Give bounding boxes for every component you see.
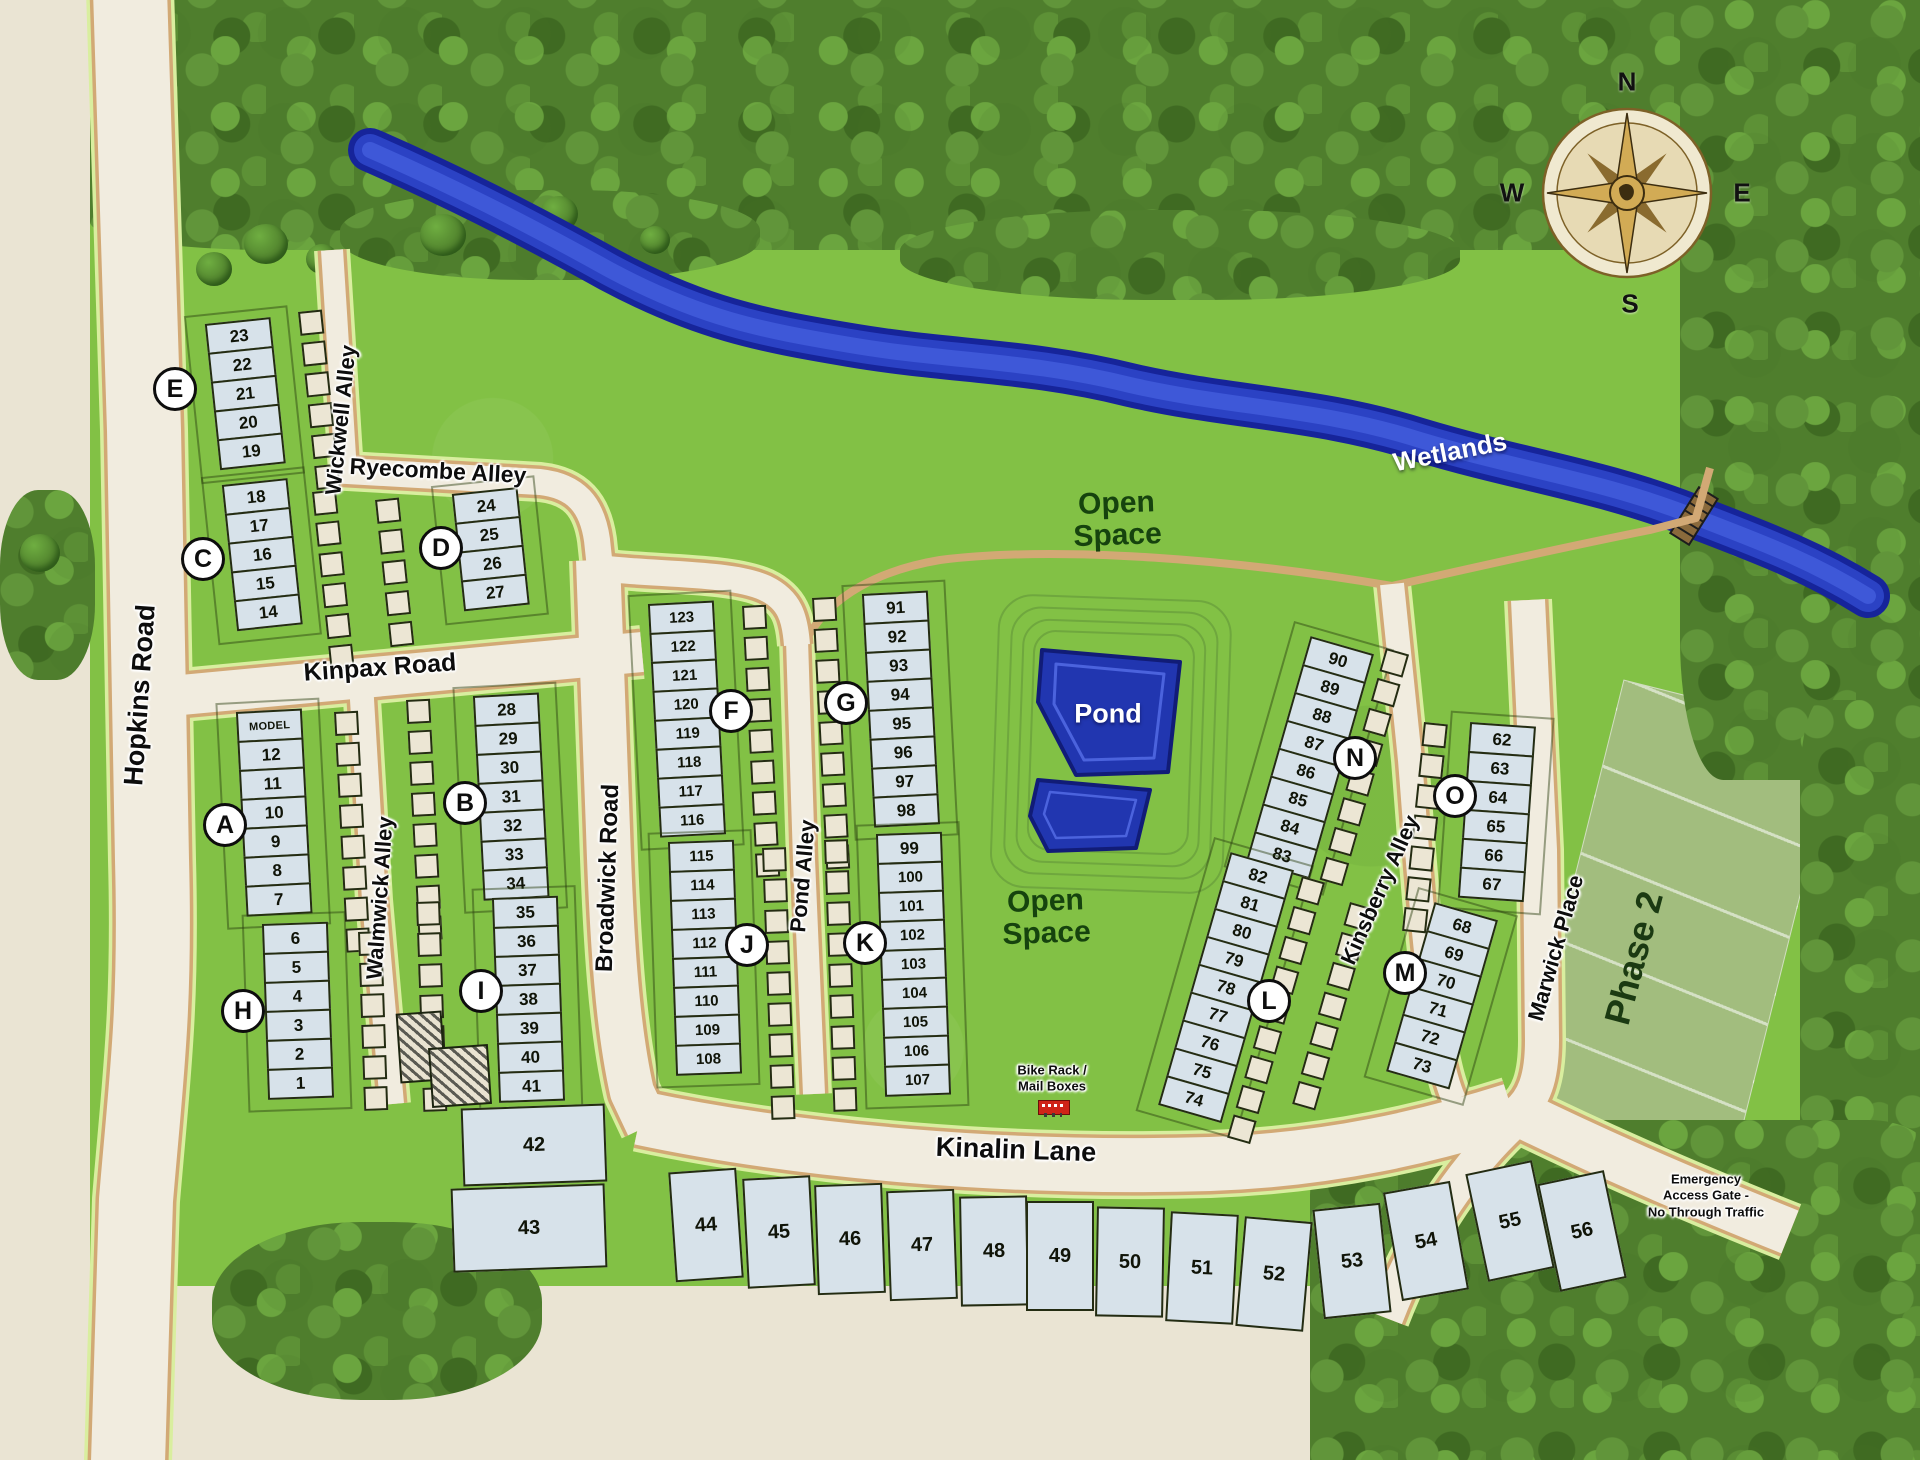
garage-square bbox=[829, 994, 854, 1019]
block-letter-B: B bbox=[443, 781, 487, 825]
garage-square bbox=[406, 699, 431, 724]
garage-square bbox=[1292, 1081, 1322, 1111]
garage-square bbox=[832, 1056, 857, 1081]
garage-square bbox=[766, 971, 791, 996]
lot-54[interactable]: 54 bbox=[1383, 1181, 1469, 1301]
block-letter-M: M bbox=[1383, 951, 1427, 995]
garage-square bbox=[742, 605, 767, 630]
compass-east-label: E bbox=[1733, 178, 1750, 209]
garage-square bbox=[301, 340, 327, 366]
garage-square bbox=[342, 866, 367, 891]
lot-50[interactable]: 50 bbox=[1095, 1206, 1165, 1317]
block-letter-G: G bbox=[824, 681, 868, 725]
garage-square bbox=[748, 729, 773, 754]
garage-square bbox=[1318, 991, 1348, 1021]
garage-square bbox=[334, 711, 359, 736]
garage-square bbox=[762, 847, 787, 872]
garage-square bbox=[771, 1095, 796, 1120]
block-D-lots: 24252627 bbox=[452, 489, 530, 611]
lot-46[interactable]: 46 bbox=[814, 1183, 886, 1295]
block-C-garages bbox=[312, 489, 355, 670]
garage-square bbox=[1328, 827, 1358, 857]
garage-square bbox=[416, 901, 441, 926]
garage-square bbox=[814, 628, 839, 653]
garage-square bbox=[763, 878, 788, 903]
garage-square bbox=[824, 839, 849, 864]
lot-39[interactable]: 39 bbox=[496, 1012, 563, 1045]
garage-square bbox=[408, 730, 433, 755]
garage-square bbox=[1362, 708, 1392, 738]
open-space-label-north: Open Space bbox=[1072, 486, 1163, 554]
garage-square bbox=[318, 551, 344, 577]
garage-square bbox=[417, 932, 442, 957]
open-space-label-south: Open Space bbox=[1001, 884, 1092, 952]
garage-square bbox=[1253, 1025, 1283, 1055]
garage-square bbox=[385, 590, 411, 616]
block-letter-D: D bbox=[419, 526, 463, 570]
lot-51[interactable]: 51 bbox=[1165, 1211, 1239, 1324]
garage-square bbox=[304, 371, 330, 397]
block-A-lots: MODEL121110987 bbox=[236, 711, 313, 917]
lot-7[interactable]: 7 bbox=[245, 882, 313, 916]
block-O-lots: 626364656667 bbox=[1458, 724, 1536, 902]
lot-55[interactable]: 55 bbox=[1465, 1160, 1554, 1282]
lot-5[interactable]: 5 bbox=[263, 951, 330, 984]
block-letter-F: F bbox=[709, 689, 753, 733]
lot-44[interactable]: 44 bbox=[668, 1168, 744, 1282]
lot-45[interactable]: 45 bbox=[742, 1175, 816, 1288]
garage-square bbox=[1278, 936, 1308, 966]
mailbox-icon bbox=[1038, 1100, 1070, 1115]
garage-square bbox=[770, 1064, 795, 1089]
block-K-garages bbox=[824, 839, 857, 1112]
garage-square bbox=[828, 963, 853, 988]
garage-square bbox=[830, 1025, 855, 1050]
lot-100[interactable]: 100 bbox=[877, 861, 944, 894]
lot-40[interactable]: 40 bbox=[497, 1041, 564, 1074]
garage-square bbox=[826, 901, 851, 926]
garage-square bbox=[1301, 1051, 1331, 1081]
garage-square bbox=[750, 760, 775, 785]
lot-101[interactable]: 101 bbox=[878, 890, 945, 923]
lot-103[interactable]: 103 bbox=[880, 948, 947, 981]
lot-67[interactable]: 67 bbox=[1458, 867, 1526, 903]
block-letter-K: K bbox=[843, 921, 887, 965]
garage-square bbox=[322, 582, 348, 608]
lot-105[interactable]: 105 bbox=[882, 1006, 949, 1039]
garage-square bbox=[1418, 753, 1444, 779]
garage-square bbox=[1236, 1085, 1266, 1115]
block-letter-N: N bbox=[1333, 736, 1377, 780]
garage-square bbox=[767, 1002, 792, 1027]
block-H-lots: 654321 bbox=[262, 924, 334, 1100]
lot-108[interactable]: 108 bbox=[675, 1043, 742, 1076]
block-letter-C: C bbox=[181, 537, 225, 581]
lot-14[interactable]: 14 bbox=[234, 593, 303, 631]
hatched-building bbox=[428, 1044, 492, 1108]
lot-35[interactable]: 35 bbox=[492, 896, 559, 929]
lot-111[interactable]: 111 bbox=[672, 956, 739, 989]
garage-square bbox=[340, 835, 365, 860]
block-C-lots: 1817161514 bbox=[222, 480, 303, 631]
garage-square bbox=[315, 520, 341, 546]
garage-square bbox=[378, 528, 404, 554]
lot-53[interactable]: 53 bbox=[1312, 1203, 1391, 1320]
garage-square bbox=[298, 309, 324, 335]
lot-6[interactable]: 6 bbox=[262, 922, 329, 955]
garage-square bbox=[1337, 797, 1367, 827]
block-letter-E: E bbox=[153, 367, 197, 411]
garage-square bbox=[815, 659, 840, 684]
garage-square bbox=[418, 963, 443, 988]
garage-square bbox=[375, 497, 401, 523]
garage-square bbox=[1409, 845, 1435, 871]
block-D-garages bbox=[375, 497, 414, 647]
compass-west-label: W bbox=[1500, 178, 1525, 209]
garage-square bbox=[362, 1055, 387, 1080]
garage-square bbox=[1421, 722, 1447, 748]
block-letter-I: I bbox=[459, 969, 503, 1013]
garage-square bbox=[411, 792, 436, 817]
garage-square bbox=[360, 993, 385, 1018]
garage-square bbox=[1244, 1055, 1274, 1085]
lot-49[interactable]: 49 bbox=[1026, 1201, 1094, 1311]
lot-114[interactable]: 114 bbox=[669, 869, 736, 902]
lot-41[interactable]: 41 bbox=[498, 1070, 565, 1103]
garage-square bbox=[812, 597, 837, 622]
lot-99[interactable]: 99 bbox=[876, 832, 943, 865]
lot-37[interactable]: 37 bbox=[494, 954, 561, 987]
garage-square bbox=[745, 667, 770, 692]
block-letter-J: J bbox=[725, 923, 769, 967]
emergency-access-gate-label: Emergency Access Gate - No Through Traff… bbox=[1648, 1172, 1764, 1221]
garage-square bbox=[409, 761, 434, 786]
block-letter-L: L bbox=[1247, 979, 1291, 1023]
lot-106[interactable]: 106 bbox=[883, 1035, 950, 1068]
block-G-lots: 9192939495969798 bbox=[862, 593, 940, 828]
lot-107[interactable]: 107 bbox=[884, 1064, 951, 1097]
garage-square bbox=[337, 773, 362, 798]
lot-27[interactable]: 27 bbox=[461, 574, 530, 612]
lot-1[interactable]: 1 bbox=[267, 1067, 334, 1100]
lot-113[interactable]: 113 bbox=[670, 898, 737, 931]
garage-square bbox=[414, 854, 439, 879]
garage-square bbox=[1295, 876, 1325, 906]
lot-4[interactable]: 4 bbox=[264, 980, 331, 1013]
lot-48[interactable]: 48 bbox=[959, 1195, 1029, 1306]
garage-square bbox=[381, 559, 407, 585]
garage-square bbox=[1287, 906, 1317, 936]
lot-36[interactable]: 36 bbox=[493, 925, 560, 958]
garage-square bbox=[820, 752, 845, 777]
garage-square bbox=[325, 613, 351, 639]
lot-102[interactable]: 102 bbox=[879, 919, 946, 952]
lot-38[interactable]: 38 bbox=[495, 983, 562, 1016]
lot-47[interactable]: 47 bbox=[886, 1189, 958, 1301]
block-K-lots: 99100101102103104105106107 bbox=[876, 834, 951, 1097]
garage-square bbox=[1309, 1021, 1339, 1051]
lot-3[interactable]: 3 bbox=[265, 1009, 332, 1042]
garage-square bbox=[833, 1087, 858, 1112]
block-I-lots: 35363738394041 bbox=[492, 898, 565, 1103]
garage-square bbox=[744, 636, 769, 661]
garage-square bbox=[361, 1024, 386, 1049]
lot-52[interactable]: 52 bbox=[1235, 1216, 1312, 1332]
block-M-lots: 686970717273 bbox=[1386, 904, 1497, 1089]
garage-square bbox=[388, 621, 414, 647]
street-label-kinalin-lane: Kinalin Lane bbox=[935, 1132, 1097, 1169]
garage-square bbox=[363, 1086, 388, 1111]
garage-square bbox=[825, 870, 850, 895]
garage-square bbox=[753, 821, 778, 846]
garage-square bbox=[412, 823, 437, 848]
garage-square bbox=[1227, 1114, 1257, 1144]
lot-42[interactable]: 42 bbox=[461, 1104, 608, 1187]
lot-56[interactable]: 56 bbox=[1537, 1170, 1626, 1292]
pond-label: Pond bbox=[1074, 699, 1142, 730]
garage-square bbox=[1326, 962, 1356, 992]
lot-109[interactable]: 109 bbox=[674, 1014, 741, 1047]
bike-rack-mailboxes-label: Bike Rack / Mail Boxes bbox=[1017, 1062, 1086, 1093]
garage-square bbox=[823, 813, 848, 838]
block-letter-A: A bbox=[203, 803, 247, 847]
lot-110[interactable]: 110 bbox=[673, 985, 740, 1018]
block-E-lots: 2322212019 bbox=[205, 319, 286, 470]
compass-south-label: S bbox=[1621, 289, 1638, 320]
block-letter-O: O bbox=[1433, 774, 1477, 818]
garage-square bbox=[339, 804, 364, 829]
garage-square bbox=[752, 790, 777, 815]
garage-square bbox=[1371, 678, 1401, 708]
lot-19[interactable]: 19 bbox=[217, 432, 286, 470]
garage-square bbox=[336, 742, 361, 767]
site-plan-map: 2322212019E1817161514C24252627DMODEL1211… bbox=[0, 0, 1920, 1452]
compass-rose bbox=[1527, 93, 1727, 293]
lot-43[interactable]: 43 bbox=[451, 1183, 608, 1272]
garage-square bbox=[1379, 648, 1409, 678]
lot-2[interactable]: 2 bbox=[266, 1038, 333, 1071]
garage-square bbox=[822, 782, 847, 807]
lot-104[interactable]: 104 bbox=[881, 977, 948, 1010]
block-letter-H: H bbox=[221, 989, 265, 1033]
compass-north-label: N bbox=[1618, 67, 1637, 98]
garage-square bbox=[768, 1033, 793, 1058]
lot-115[interactable]: 115 bbox=[668, 840, 735, 873]
